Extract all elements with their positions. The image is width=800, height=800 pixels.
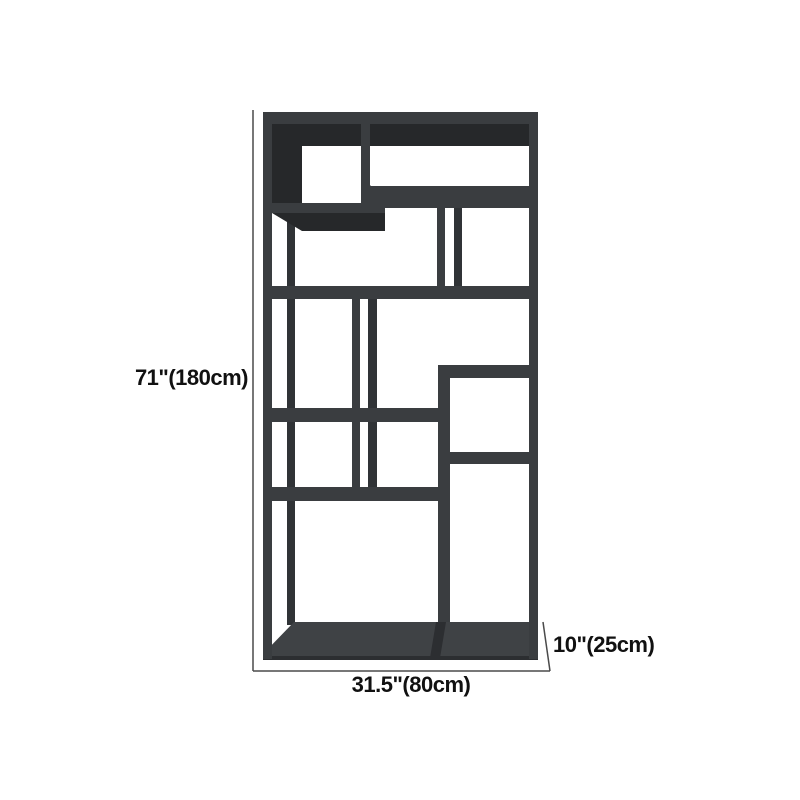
mid-left-shelf xyxy=(263,408,450,422)
middle-front-post xyxy=(352,299,360,488)
upper-right-shelf xyxy=(361,186,530,208)
height-dimension-label: 71"(180cm) xyxy=(135,367,248,389)
middle-back-post xyxy=(368,298,377,488)
shelf-base xyxy=(263,622,538,660)
left-wall xyxy=(263,112,272,659)
product-dimension-diagram: 71"(180cm) 31.5"(80cm) 10"(25cm) xyxy=(0,0,800,800)
full-width-shelf xyxy=(263,286,538,299)
lower-left-shelf xyxy=(263,487,450,501)
top-left-box-inner-left-face xyxy=(272,146,302,203)
right-wall xyxy=(529,112,538,659)
upper-right-back-post xyxy=(454,208,462,288)
top-panel xyxy=(263,112,538,124)
upper-right-divider-post xyxy=(437,208,445,286)
shelf-inner-faces xyxy=(271,124,530,231)
base-top-surface xyxy=(263,622,538,660)
top-panel-underside xyxy=(271,124,530,146)
right-box-bottom xyxy=(438,452,538,464)
depth-dimension-line xyxy=(543,622,550,671)
base-front-edge xyxy=(263,656,538,660)
right-box-top xyxy=(438,365,538,378)
shelf-frame xyxy=(263,112,538,659)
width-dimension-label: 31.5"(80cm) xyxy=(352,674,471,696)
depth-dimension-label: 10"(25cm) xyxy=(553,634,654,656)
